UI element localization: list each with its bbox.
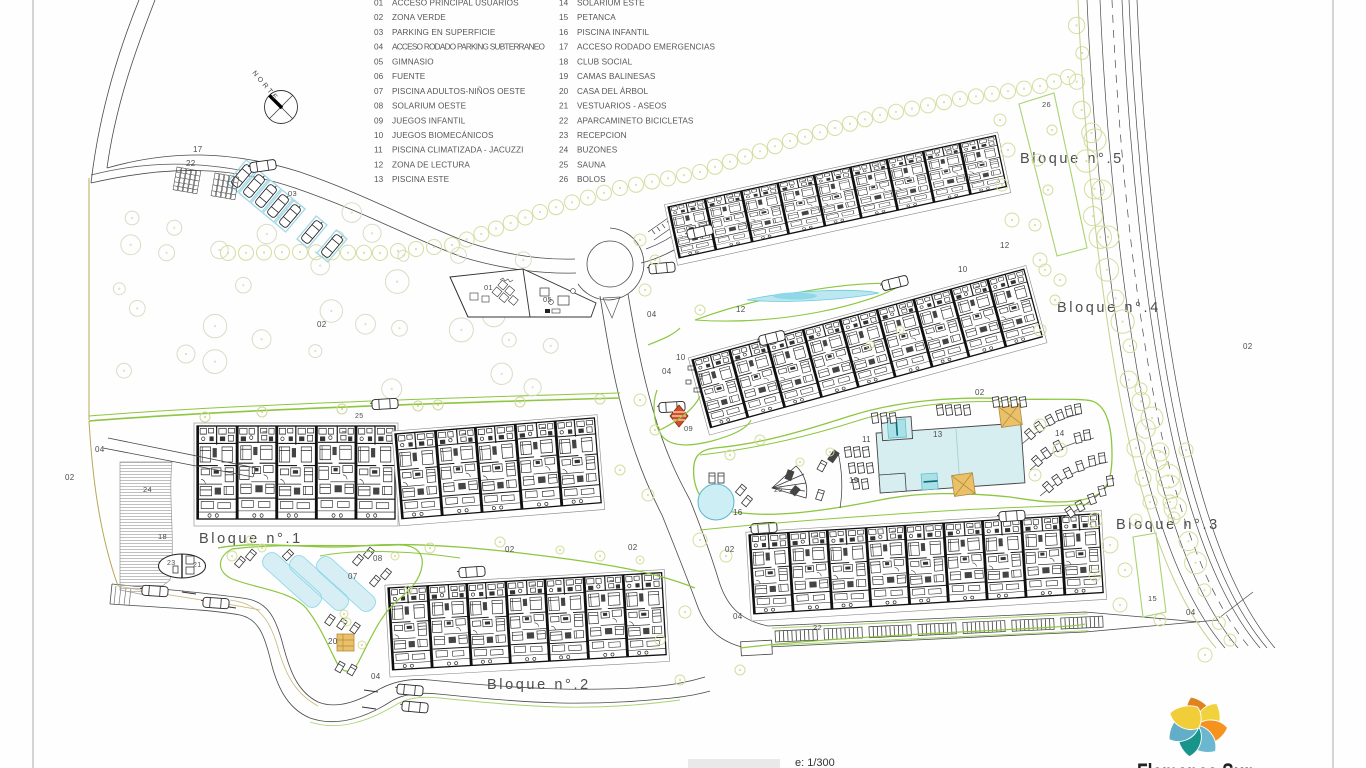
svg-text:02: 02	[374, 13, 384, 22]
svg-text:07: 07	[348, 572, 358, 581]
svg-text:12: 12	[736, 305, 746, 314]
svg-text:05: 05	[374, 57, 384, 66]
svg-text:PISCINA CLIMATIZADA - JACUZZI: PISCINA CLIMATIZADA - JACUZZI	[392, 146, 524, 155]
svg-text:02: 02	[317, 320, 327, 329]
svg-text:22: 22	[813, 623, 822, 632]
svg-text:04: 04	[371, 672, 381, 681]
svg-text:12: 12	[1000, 241, 1010, 250]
svg-text:PISCINA INFANTIL: PISCINA INFANTIL	[577, 28, 649, 37]
svg-text:02: 02	[65, 473, 75, 482]
svg-text:01: 01	[484, 283, 493, 292]
svg-text:15: 15	[559, 13, 569, 22]
svg-text:03: 03	[374, 28, 384, 37]
svg-text:02: 02	[505, 545, 515, 554]
svg-text:21: 21	[559, 102, 569, 111]
svg-text:07: 07	[374, 87, 384, 96]
svg-text:22: 22	[559, 116, 569, 125]
svg-text:Bloque n°.5: Bloque n°.5	[1020, 151, 1124, 167]
svg-text:01: 01	[374, 0, 384, 8]
svg-text:JUEGOS INFANTIL: JUEGOS INFANTIL	[392, 116, 466, 125]
svg-text:SAUNA: SAUNA	[577, 160, 606, 169]
svg-text:Bloque n°.2: Bloque n°.2	[487, 677, 591, 693]
svg-text:06: 06	[374, 72, 384, 81]
svg-text:13: 13	[374, 175, 384, 184]
svg-text:04: 04	[95, 445, 105, 454]
svg-text:11: 11	[374, 146, 383, 155]
svg-text:16: 16	[559, 28, 569, 37]
svg-text:09: 09	[374, 116, 384, 125]
svg-text:10: 10	[958, 265, 968, 274]
svg-text:BUZONES: BUZONES	[577, 146, 618, 155]
svg-text:24: 24	[559, 146, 569, 155]
svg-text:PISCINA ADULTOS-NIÑOS OESTE: PISCINA ADULTOS-NIÑOS OESTE	[392, 86, 526, 96]
svg-text:14: 14	[559, 0, 569, 8]
svg-text:20: 20	[328, 637, 338, 646]
svg-text:FUENTE: FUENTE	[392, 72, 426, 81]
svg-text:12: 12	[374, 160, 384, 169]
svg-text:PISCINA ESTE: PISCINA ESTE	[392, 175, 450, 184]
svg-text:Bloque n°.4: Bloque n°.4	[1057, 300, 1161, 316]
svg-text:Flamenca Sun: Flamenca Sun	[1137, 759, 1255, 768]
svg-text:13: 13	[933, 430, 943, 439]
svg-text:19: 19	[559, 72, 569, 81]
svg-text:PARKING EN SUPERFICIE: PARKING EN SUPERFICIE	[392, 28, 496, 37]
svg-text:ACCESO RODADO PARKING SUBTERRA: ACCESO RODADO PARKING SUBTERRANEO	[392, 43, 545, 52]
svg-text:02: 02	[975, 388, 985, 397]
svg-text:VESTUARIOS - ASEOS: VESTUARIOS - ASEOS	[577, 102, 667, 111]
svg-text:22: 22	[186, 159, 196, 168]
svg-text:24: 24	[143, 485, 152, 494]
svg-text:10: 10	[374, 131, 384, 140]
svg-text:20: 20	[559, 87, 569, 96]
svg-text:25: 25	[355, 413, 363, 420]
svg-text:11: 11	[862, 435, 871, 444]
svg-text:23: 23	[559, 131, 569, 140]
svg-text:ZONA DE LECTURA: ZONA DE LECTURA	[392, 160, 470, 169]
svg-text:GIMNASIO: GIMNASIO	[392, 57, 434, 66]
svg-text:APARCAMINETO BICICLETAS: APARCAMINETO BICICLETAS	[577, 116, 694, 125]
svg-text:CASA DEL ÁRBOL: CASA DEL ÁRBOL	[577, 86, 649, 96]
svg-text:SOLARIUM OESTE: SOLARIUM OESTE	[392, 102, 467, 111]
svg-text:04: 04	[733, 612, 743, 621]
svg-text:25: 25	[774, 487, 782, 494]
svg-text:23: 23	[167, 560, 175, 567]
svg-text:CLUB SOCIAL: CLUB SOCIAL	[577, 57, 633, 66]
svg-text:ACCESO RODADO EMERGENCIAS: ACCESO RODADO EMERGENCIAS	[577, 43, 716, 52]
svg-text:RECEPCION: RECEPCION	[577, 131, 627, 140]
svg-text:e: 1/300: e: 1/300	[795, 757, 835, 768]
svg-text:JUEGOS BIOMECÁNICOS: JUEGOS BIOMECÁNICOS	[392, 130, 494, 140]
svg-text:PETANCA: PETANCA	[577, 13, 616, 22]
svg-text:10: 10	[676, 353, 686, 362]
svg-text:04: 04	[647, 310, 657, 319]
svg-text:15: 15	[1148, 594, 1157, 603]
svg-text:04: 04	[374, 43, 384, 52]
svg-text:21: 21	[193, 562, 201, 569]
svg-text:05: 05	[543, 295, 552, 304]
svg-text:03: 03	[288, 189, 297, 198]
svg-text:ACCESO PRINCIPAL USUARIOS: ACCESO PRINCIPAL USUARIOS	[392, 0, 519, 8]
svg-text:08: 08	[373, 554, 383, 563]
svg-text:26: 26	[1042, 100, 1051, 109]
svg-text:ZONA VERDE: ZONA VERDE	[392, 13, 446, 22]
svg-text:18: 18	[559, 57, 569, 66]
svg-text:04: 04	[1186, 608, 1196, 617]
svg-text:SOLARIUM ESTE: SOLARIUM ESTE	[577, 0, 645, 8]
svg-text:04: 04	[662, 367, 672, 376]
svg-text:08: 08	[374, 102, 384, 111]
svg-text:14: 14	[1055, 429, 1065, 438]
svg-text:18: 18	[158, 532, 167, 541]
svg-text:02: 02	[1243, 342, 1253, 351]
svg-text:25: 25	[559, 160, 569, 169]
svg-text:17: 17	[559, 43, 569, 52]
svg-text:02: 02	[628, 543, 638, 552]
svg-text:CAMAS BALINESAS: CAMAS BALINESAS	[577, 72, 656, 81]
svg-text:16: 16	[733, 508, 743, 517]
svg-text:09: 09	[684, 424, 693, 433]
svg-text:17: 17	[193, 145, 203, 154]
svg-text:26: 26	[559, 175, 569, 184]
svg-text:19: 19	[849, 476, 859, 485]
svg-text:BOLOS: BOLOS	[577, 175, 606, 184]
svg-text:02: 02	[725, 545, 735, 554]
